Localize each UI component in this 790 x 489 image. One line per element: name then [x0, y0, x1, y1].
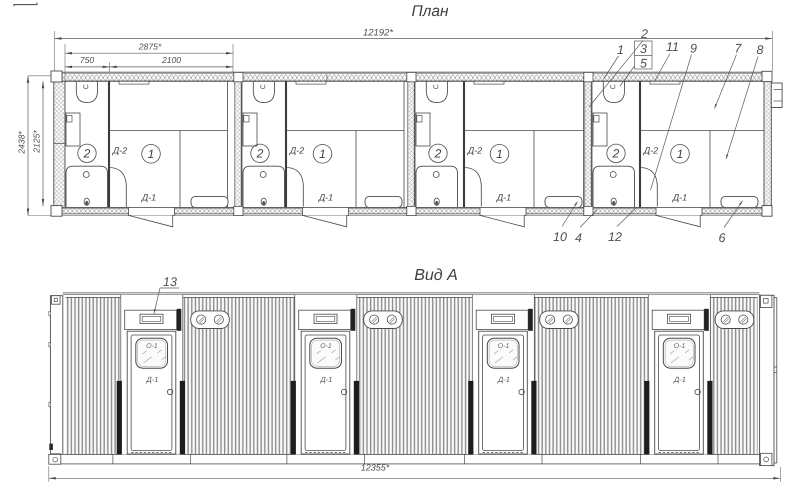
svg-text:Д-1: Д-1	[672, 193, 687, 203]
svg-text:3: 3	[640, 42, 647, 56]
svg-text:О-1: О-1	[146, 343, 158, 350]
svg-text:Д-1: Д-1	[146, 375, 159, 384]
svg-text:1: 1	[496, 147, 503, 161]
svg-text:Д-1: Д-1	[318, 193, 333, 203]
svg-text:9: 9	[690, 42, 697, 56]
svg-text:План: План	[411, 3, 449, 20]
svg-text:4: 4	[575, 231, 582, 245]
svg-text:5: 5	[640, 57, 647, 71]
svg-text:2: 2	[256, 147, 264, 161]
svg-text:11: 11	[666, 40, 679, 54]
svg-text:2: 2	[434, 147, 442, 161]
svg-text:Д-1: Д-1	[320, 375, 333, 384]
svg-text:1: 1	[148, 147, 155, 161]
svg-text:Д-2: Д-2	[112, 146, 127, 156]
svg-text:13: 13	[163, 275, 177, 289]
svg-text:2100: 2100	[161, 55, 181, 65]
svg-text:12192*: 12192*	[363, 28, 393, 39]
svg-text:6: 6	[719, 231, 726, 245]
svg-text:Д-1: Д-1	[673, 375, 686, 384]
svg-text:О-1: О-1	[674, 343, 686, 350]
svg-text:7: 7	[735, 42, 743, 56]
svg-text:1: 1	[319, 147, 326, 161]
svg-text:Д-1: Д-1	[141, 193, 156, 203]
svg-text:2438*: 2438*	[17, 131, 27, 155]
svg-text:Д-2: Д-2	[289, 146, 304, 156]
svg-text:12: 12	[608, 230, 622, 244]
svg-text:Вид А: Вид А	[414, 267, 458, 284]
svg-text:О-1: О-1	[498, 343, 510, 350]
svg-text:12355*: 12355*	[361, 463, 390, 473]
svg-text:Д-1: Д-1	[497, 375, 510, 384]
svg-text:2125*: 2125*	[32, 130, 42, 154]
svg-text:2: 2	[612, 147, 620, 161]
svg-text:2: 2	[83, 147, 91, 161]
svg-text:2: 2	[640, 27, 648, 41]
svg-text:Д-2: Д-2	[467, 146, 482, 156]
svg-text:Д-2: Д-2	[643, 146, 658, 156]
svg-text:2875*: 2875*	[138, 41, 162, 51]
svg-text:8: 8	[757, 43, 764, 57]
svg-text:1: 1	[677, 147, 684, 161]
svg-text:О-1: О-1	[320, 343, 332, 350]
svg-text:10: 10	[553, 230, 567, 244]
svg-text:1: 1	[617, 43, 624, 57]
svg-text:750: 750	[80, 55, 95, 65]
svg-text:Д-1: Д-1	[496, 193, 511, 203]
